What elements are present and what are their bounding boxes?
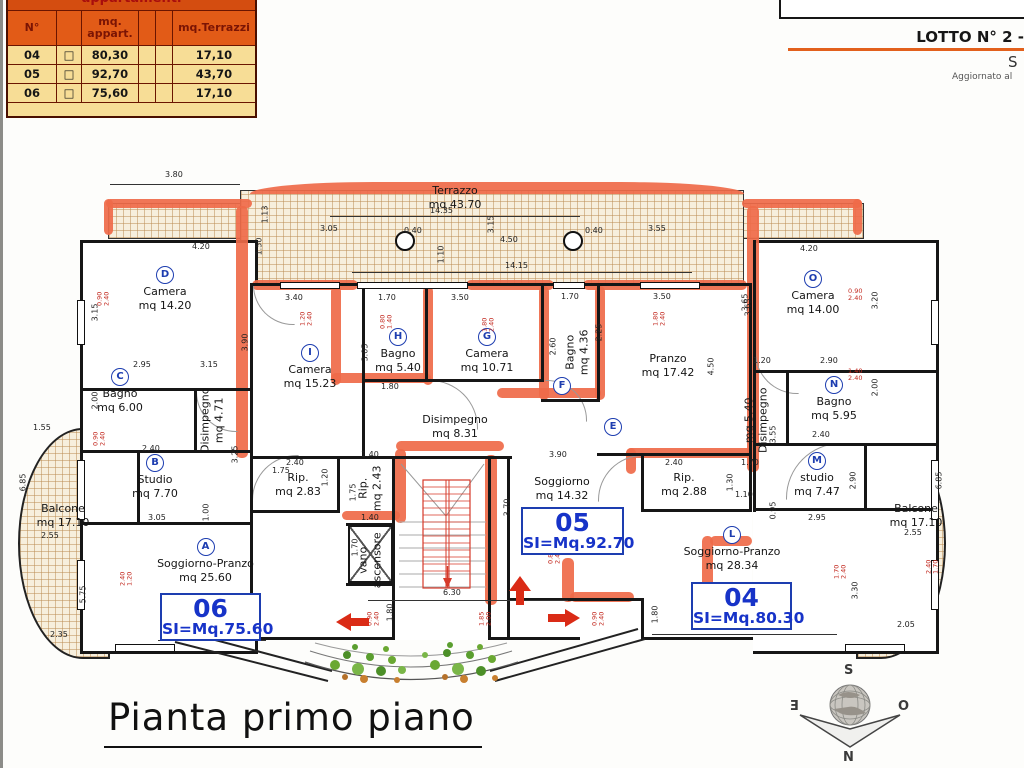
dimension-label: 2.05: [897, 620, 915, 629]
dimension-label: 4.50: [706, 358, 715, 376]
dimension-label: 1.75: [348, 484, 357, 502]
dimension-label: 2.95: [133, 360, 151, 369]
highlight-wall-segment: [104, 199, 113, 235]
table-row: 05 □ 92,70 43,70: [7, 65, 256, 84]
dimension-line: [352, 272, 692, 273]
legend-header-terrazzi: mq.Terrazzi: [173, 11, 257, 46]
drawing-title-underline: [104, 746, 482, 748]
dimension-label: 3.05: [148, 513, 166, 522]
dimension-label: 3.50: [653, 292, 671, 301]
cell-apartment-mq: 75,60: [82, 84, 139, 103]
cell-apartment-number: 05: [7, 65, 57, 84]
checkbox-glyph: □: [57, 65, 82, 84]
room-camera-i: I Camera mq 15.23: [260, 344, 360, 392]
dimension-label: 6.30: [443, 588, 461, 597]
dimension-label: 2.40: [142, 444, 160, 453]
checkbox-glyph: □: [57, 46, 82, 65]
dimension-label: 1.70: [741, 458, 759, 467]
dimension-label: 2.55: [904, 528, 922, 537]
dimension-label: 2.60: [548, 338, 557, 356]
cell-apartment-mq: 80,30: [82, 46, 139, 65]
wall-segment: [755, 370, 936, 373]
dimension-label: 1.30: [725, 474, 734, 492]
dimension-label: 2.90: [820, 356, 838, 365]
room-camera-d: D Camera mq 14.20: [115, 266, 215, 314]
scanned-floor-plan-page: appartamenti N° mq. appart. mq.Terrazzi …: [0, 0, 1024, 768]
door-size-annotation: 1.80 2.40: [481, 318, 495, 332]
legend-header-mq: mq. appart.: [82, 11, 139, 46]
scan-edge-shadow: [0, 0, 3, 768]
highlight-wall-segment: [396, 441, 504, 451]
wall-segment: [597, 453, 752, 456]
room-letter-badge: A: [197, 538, 215, 556]
updated-at-label: Aggiornato al: [952, 72, 1012, 82]
room-letter-badge: D: [156, 266, 174, 284]
door-size-annotation: 1.40 2.40: [848, 368, 862, 382]
dimension-label: 3.40: [285, 293, 303, 302]
lotto-subtitle-fragment: S: [1008, 53, 1018, 71]
apartment-05-badge: 05 SI=Mq.92.70: [521, 507, 624, 555]
legend-header-spacer2: [156, 11, 173, 46]
builder-logo-text: COSTRUZIONI: [793, 0, 990, 2]
staircase-drawing: [395, 458, 490, 600]
dimension-label: 3.20: [870, 292, 879, 310]
room-pranzo-e: Pranzo mq 17.42: [618, 352, 718, 381]
table-row: 06 □ 75,60 17,10: [7, 84, 256, 103]
terrace-strip-left: [108, 203, 242, 239]
dimension-label: 2.90: [848, 472, 857, 490]
room-camera-g: G Camera mq 10.71: [437, 328, 537, 376]
dimension-label: 3.15: [200, 360, 218, 369]
dimension-label: 3.15: [486, 216, 495, 234]
wall-segment: [641, 509, 752, 512]
window-opening: [845, 644, 905, 652]
door-size-annotation: 0.90 2.40: [92, 432, 106, 446]
door-size-annotation: 0.90 2.40: [96, 292, 110, 306]
door-size-annotation: 1.85 2.00: [478, 612, 492, 626]
legend-title: appartamenti: [7, 0, 256, 11]
room-rip-288: Rip. mq 2.88: [644, 471, 724, 500]
dimension-label: 1.13: [260, 206, 269, 224]
dimension-label: 3.55: [648, 224, 666, 233]
dimension-label: 2.40: [286, 458, 304, 467]
dimension-label: 1.00: [201, 504, 210, 522]
wall-segment: [250, 510, 340, 513]
window-opening: [357, 282, 468, 289]
entrance-arrow-left-bar: [351, 618, 369, 626]
dimension-label: 1.80: [381, 382, 399, 391]
cell-terrace-mq: 43,70: [173, 65, 257, 84]
wall-segment: [194, 388, 197, 452]
dimension-label: 1.75: [272, 466, 290, 475]
dimension-label: 2.40: [812, 430, 830, 439]
wall-segment: [755, 443, 936, 446]
dimension-label: 3.30: [850, 582, 859, 600]
dimension-label: 2.25: [594, 324, 603, 342]
window-opening: [77, 300, 85, 345]
dimension-label: 1.80: [650, 606, 659, 624]
dimension-label: 2.40: [665, 458, 683, 467]
room-letter-badge: L: [723, 526, 741, 544]
room-studio-b: B Studio mq 7.70: [105, 454, 205, 502]
apartment-04-badge: 04 SI=Mq.80.30: [691, 582, 792, 630]
dimension-label: 1.40: [361, 513, 379, 522]
dimension-label: 1.70: [378, 293, 396, 302]
dimension-label: 1.20: [320, 469, 329, 487]
dimension-label: 3.55: [768, 426, 777, 444]
dimension-label: 3.70: [502, 499, 511, 517]
dimension-label: 1.10: [436, 246, 445, 264]
dimension-line: [110, 184, 240, 185]
door-size-annotation: 0.90 2.40: [591, 612, 605, 626]
dimension-label: 1.70: [561, 292, 579, 301]
lotto-label: LOTTO N° 2 -: [840, 28, 1024, 46]
dimension-label: 3.15: [90, 304, 99, 322]
window-opening: [931, 300, 939, 345]
dimension-label: 1.70: [350, 539, 359, 557]
dimension-label: 14.35: [430, 206, 453, 215]
terrace-strip-right: [742, 203, 864, 239]
room-disimpegno-central: Disimpegno mq 8.31: [405, 413, 505, 442]
room-bagno-c: C Bagno mq 6.00: [70, 368, 170, 416]
dimension-label: 1.80: [385, 604, 394, 622]
dimension-label: 4.20: [800, 244, 818, 253]
apartments-legend-table: appartamenti N° mq. appart. mq.Terrazzi …: [6, 0, 257, 118]
legend-header-checkbox: [57, 11, 82, 46]
highlight-wall-segment: [853, 199, 862, 235]
door-size-annotation: 0.90 2.40: [848, 288, 862, 302]
dimension-label: 0.95: [768, 502, 777, 520]
window-opening: [280, 282, 340, 289]
dimension-label: 2.95: [808, 513, 826, 522]
dimension-label: 3.65: [740, 294, 749, 312]
door-size-annotation: 1.70 2.40: [833, 565, 847, 579]
dimension-label: 3.05: [360, 344, 369, 362]
table-row-empty: [7, 103, 256, 118]
door-size-annotation: 1.80 2.40: [652, 312, 666, 326]
entrance-arrow-left: [336, 613, 351, 631]
entrance-arrow-up: [509, 576, 531, 591]
dimension-label: 14.15: [505, 261, 528, 270]
dimension-label: 6.85: [934, 472, 943, 490]
dimension-label: 1.55: [33, 423, 51, 432]
cell-terrace-mq: 17,10: [173, 84, 257, 103]
cell-apartment-number: 04: [7, 46, 57, 65]
dimension-line: [652, 634, 837, 635]
dimension-label: 2.00: [870, 379, 879, 397]
compass-graphic: [786, 663, 914, 765]
room-soggiorno-05: Soggiorno mq 14.32: [512, 475, 612, 504]
lotto-underline: [788, 48, 1024, 51]
dimension-label: 3.80: [165, 170, 183, 179]
terrace-label: Terrazzo mq 43.70: [405, 184, 505, 213]
dimension-label: 2.00: [90, 392, 99, 410]
apartment-06-badge: 06 SI=Mq.75.60: [160, 593, 261, 641]
dimension-label: 6.85: [18, 474, 27, 492]
room-letter-badge: C: [111, 368, 129, 386]
dimension-label: 1.20: [753, 356, 771, 365]
dimension-label: 0.40: [404, 226, 422, 235]
terrace-column: [563, 231, 583, 251]
room-disimpegno-left: Disimpegno mq 4.71: [199, 370, 228, 470]
dimension-label: 3.50: [451, 293, 469, 302]
dimension-label: 4.50: [500, 235, 518, 244]
door-size-annotation: 2.40 1.70: [925, 560, 939, 574]
room-letter-badge: H: [389, 328, 407, 346]
table-row: 04 □ 80,30 17,10: [7, 46, 256, 65]
cell-apartment-mq: 92,70: [82, 65, 139, 84]
room-soggiorno-a: A Soggiorno-Pranzo mq 25.60: [148, 538, 263, 586]
wall-segment: [597, 285, 600, 402]
window-opening: [640, 282, 700, 289]
dimension-label: 2.35: [50, 630, 68, 639]
dimension-label: 3.90: [240, 334, 249, 352]
door-size-annotation: 1.20 2.40: [299, 312, 313, 326]
checkbox-glyph: □: [57, 84, 82, 103]
balcony-left-label: Balcone mq 17.10: [18, 502, 108, 531]
room-letter-badge: E: [604, 418, 622, 436]
door-size-annotation: 2.40 1.20: [119, 572, 133, 586]
room-letter-badge: O: [804, 270, 822, 288]
dimension-label: 2.55: [41, 531, 59, 540]
dimension-label: 1.10: [735, 490, 753, 499]
entrance-arrow-right: [565, 609, 580, 627]
dimension-label: 3.05: [320, 224, 338, 233]
dimension-label: 3.25: [230, 446, 239, 464]
room-soggiorno-l: L Soggiorno-Pranzo mq 28.34: [662, 526, 802, 574]
dimension-line: [330, 216, 580, 217]
dimension-label: 5.75: [78, 586, 87, 604]
entrance-arrow-up-bar: [516, 591, 524, 605]
room-letter-badge: N: [825, 376, 843, 394]
wall-segment: [541, 285, 544, 382]
cell-apartment-number: 06: [7, 84, 57, 103]
entrance-arrow-right-bar: [548, 614, 565, 622]
dimension-label: 3.90: [549, 450, 567, 459]
room-letter-badge: I: [301, 344, 319, 362]
dimension-line: [368, 600, 568, 601]
window-opening: [553, 282, 585, 289]
dimension-label: 1.40: [361, 450, 379, 459]
compass-rose: S E O N: [786, 663, 914, 765]
highlight-wall-segment: [106, 199, 252, 208]
drawing-title: Pianta primo piano: [108, 696, 475, 739]
room-bagno-n: N Bagno mq 5.95: [784, 376, 884, 424]
legend-header-n: N°: [7, 11, 57, 46]
room-letter-badge: F: [553, 377, 571, 395]
cell-terrace-mq: 17,10: [173, 46, 257, 65]
room-letter-badge: B: [146, 454, 164, 472]
dimension-label: 0.40: [585, 226, 603, 235]
builder-logo-box: COSTRUZIONI: [779, 0, 1024, 19]
dimension-label: 1.50: [254, 238, 263, 256]
legend-header-spacer1: [139, 11, 156, 46]
wall-segment: [83, 522, 252, 525]
wall-segment: [541, 399, 599, 402]
door-size-annotation: 0.80 1.40: [379, 315, 393, 329]
balcony-right-label: Balcone mq 17.10: [871, 502, 961, 531]
highlight-wall-segment: [742, 199, 862, 208]
dimension-label: 4.20: [192, 242, 210, 251]
room-letter-badge: M: [808, 452, 826, 470]
